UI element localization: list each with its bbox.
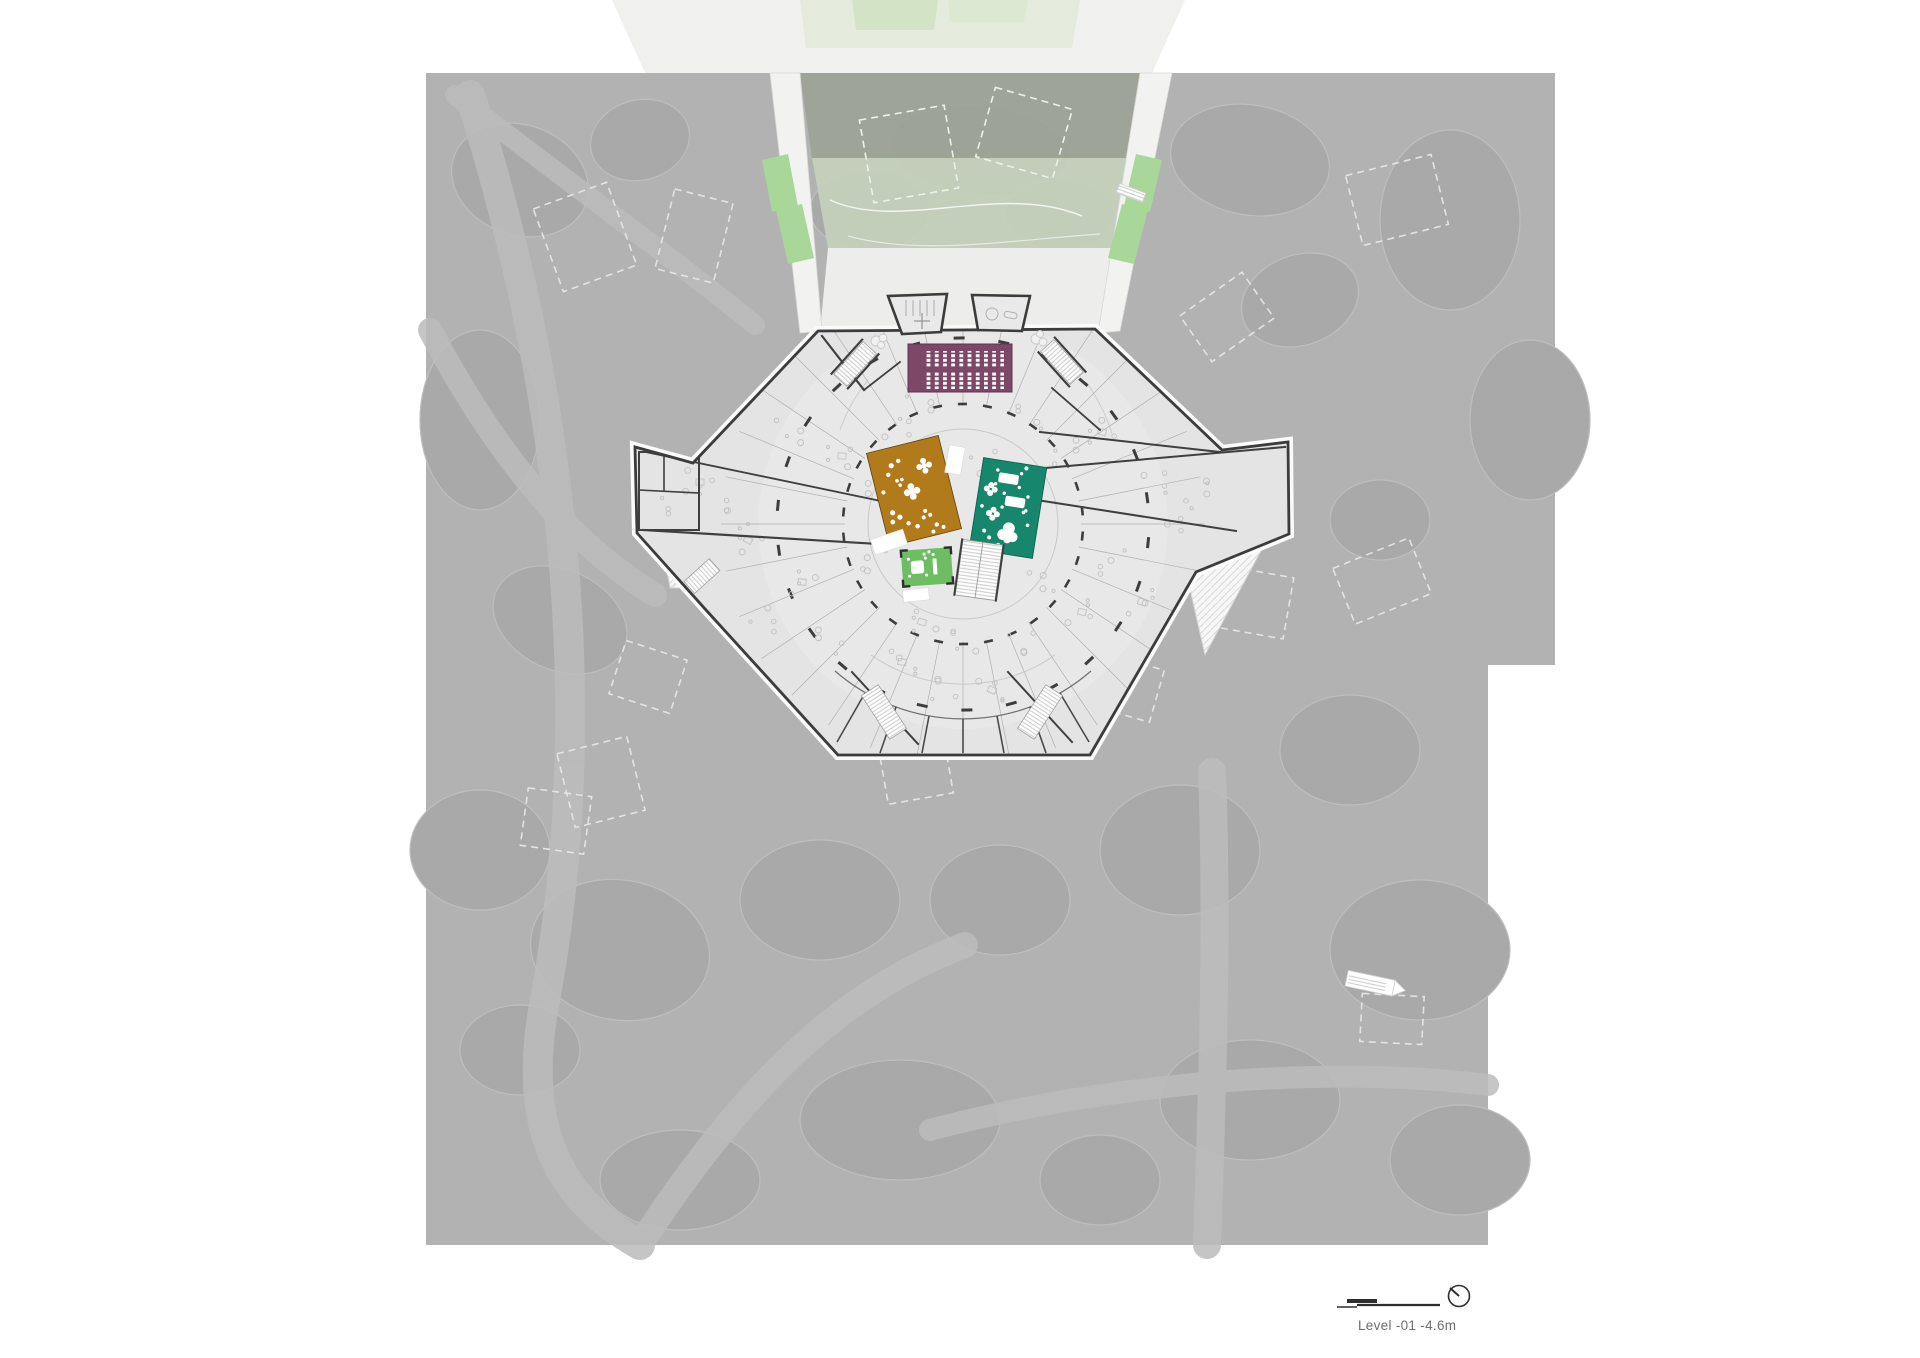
drawing-legend: Level -01 -4.6m [1337,1286,1470,1334]
top-approach-band [612,0,1185,73]
level-label: Level -01 -4.6m [1358,1318,1456,1333]
seat-rows-upper [924,351,1004,368]
courtyard-green-overlay [812,158,1130,248]
workshop-box-green [901,547,953,586]
floor-plan-canvas: Level -01 -4.6m [0,0,1920,1358]
scale-bar [1337,1301,1440,1307]
seat-rows-lower [924,372,1004,389]
entry-plaza [820,248,1112,331]
site-plan-svg: Level -01 -4.6m [0,0,1920,1358]
courtyard-upper-level [800,73,1140,158]
north-arrow-icon [1449,1286,1470,1307]
entrance-room-east [972,295,1030,331]
central-stair [954,538,1004,601]
auditorium-box [908,344,1012,392]
